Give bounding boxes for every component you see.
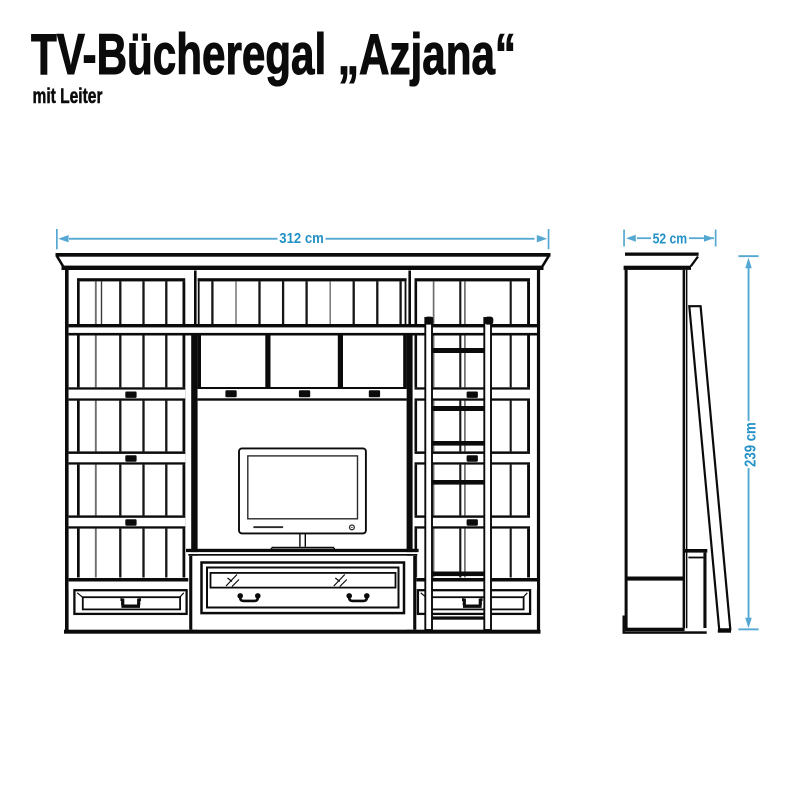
svg-text:312 cm: 312 cm [279,231,324,247]
svg-text:mit Leiter: mit Leiter [33,85,103,108]
svg-text:239 cm: 239 cm [742,422,759,467]
svg-text:TV-Bücheregal „Azjana“: TV-Bücheregal „Azjana“ [31,23,516,87]
svg-text:52 cm: 52 cm [653,231,688,247]
